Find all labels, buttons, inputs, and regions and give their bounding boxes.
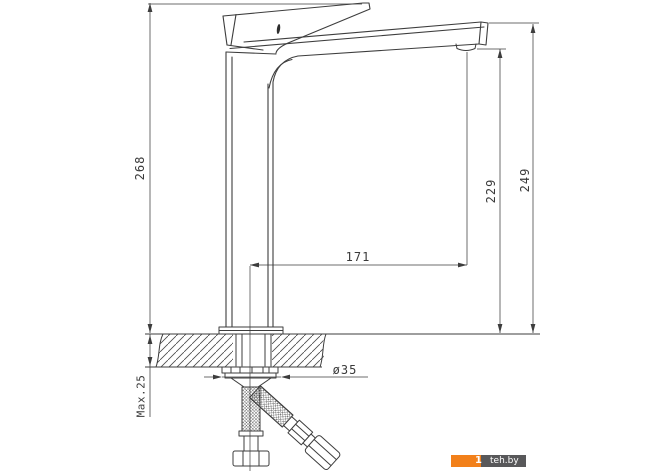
faucet-handle [223, 3, 370, 53]
dimension-label-dia35: ø35 [333, 363, 358, 377]
drawing-canvas [0, 0, 670, 471]
handle-indicator-mark [276, 24, 281, 34]
watermark-prefix: 1 [475, 455, 482, 467]
base-flange [219, 327, 283, 334]
faucet-dimension-drawing: 268 229 249 171 Max.25 ø35 1 teh.by [0, 0, 670, 471]
dimension-label-229: 229 [484, 179, 498, 204]
countertop-hatch-right [272, 334, 326, 367]
supply-hose-vertical [242, 387, 260, 431]
faucet-column [226, 52, 276, 327]
dimension-label-268: 268 [133, 156, 147, 181]
watermark-site-block: 1 teh.by [481, 455, 526, 467]
dimension-label-249: 249 [518, 168, 532, 193]
faucet-body [219, 3, 488, 366]
faucet-spout [230, 22, 488, 88]
dimension-arrows [148, 3, 536, 379]
watermark-site-text: teh.by [490, 456, 519, 466]
dimension-label-171: 171 [346, 250, 371, 264]
dimension-label-max25: Max.25 [135, 375, 148, 418]
hose-bottom-nut [233, 451, 269, 466]
watermark-badge: 1 teh.by [451, 455, 526, 467]
countertop-hatch-left [156, 334, 233, 367]
mounting-shank [236, 334, 271, 366]
